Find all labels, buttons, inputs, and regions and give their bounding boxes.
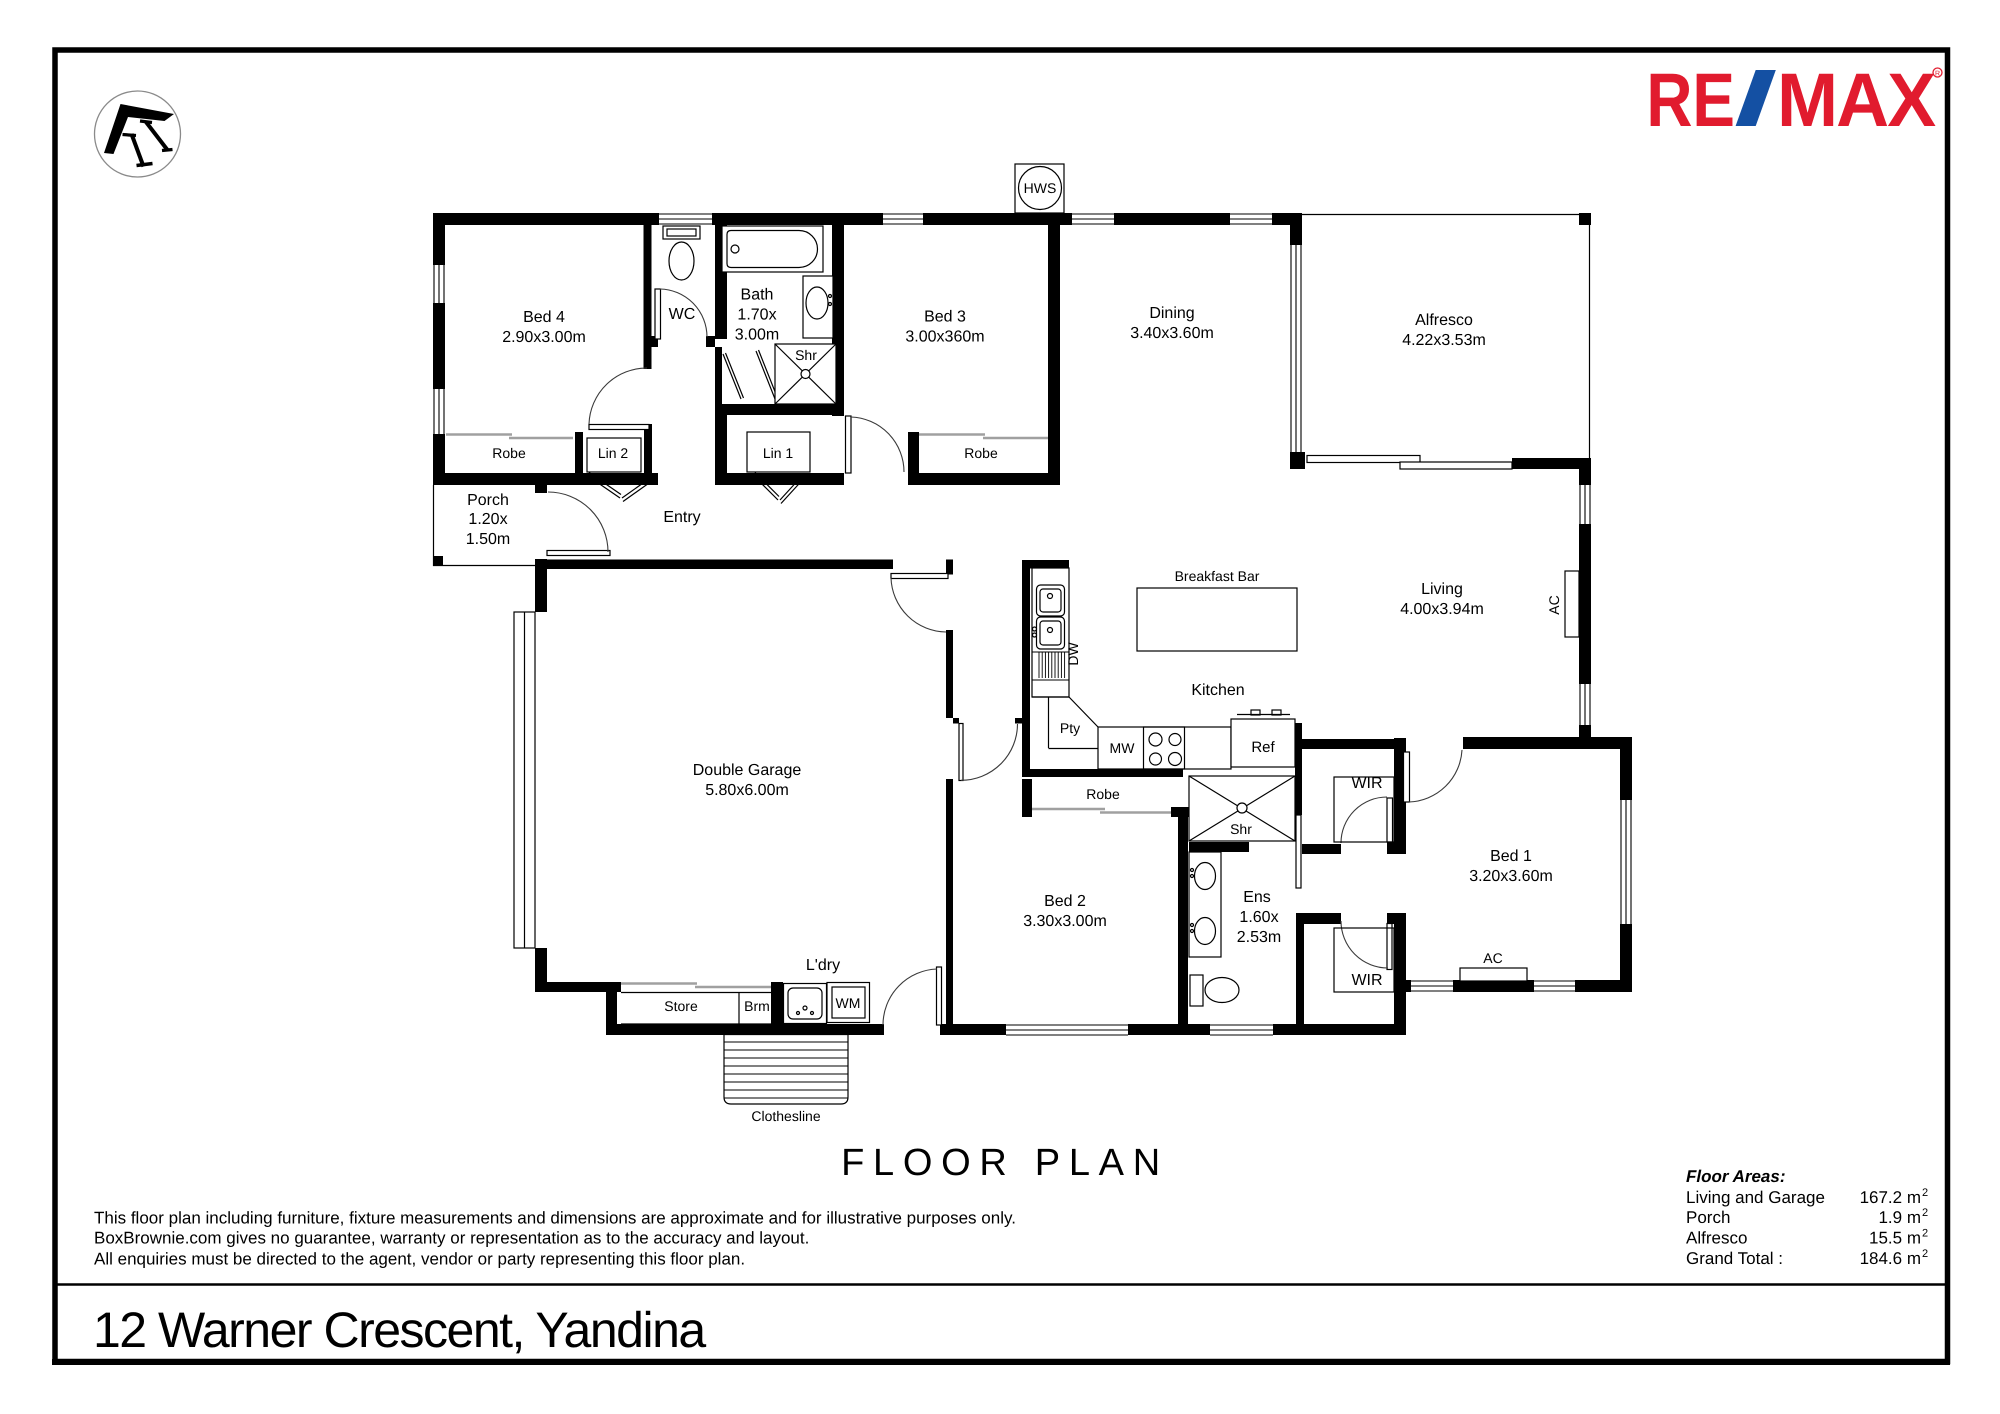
- svg-text:WIR: WIR: [1351, 972, 1382, 989]
- svg-text:Porch: Porch: [467, 492, 509, 509]
- svg-text:R: R: [1935, 71, 1940, 78]
- svg-text:Bed 3: Bed 3: [924, 309, 966, 326]
- svg-text:Robe: Robe: [492, 445, 526, 461]
- svg-text:Dining: Dining: [1149, 305, 1194, 322]
- svg-text:1.20x: 1.20x: [468, 511, 507, 528]
- svg-text:1.9 m: 1.9 m: [1878, 1208, 1921, 1227]
- svg-text:AC: AC: [1546, 595, 1562, 614]
- svg-text:AC: AC: [1483, 950, 1502, 966]
- svg-text:Shr: Shr: [795, 347, 817, 363]
- svg-text:Shr: Shr: [1230, 821, 1252, 837]
- svg-text:3.20x3.60m: 3.20x3.60m: [1469, 868, 1553, 885]
- svg-text:4.00x3.94m: 4.00x3.94m: [1400, 601, 1484, 618]
- svg-text:3.00m: 3.00m: [735, 327, 779, 344]
- svg-text:1.70x: 1.70x: [737, 307, 776, 324]
- svg-text:2: 2: [1922, 1207, 1928, 1219]
- svg-text:WM: WM: [836, 995, 861, 1011]
- svg-text:This floor plan including furn: This floor plan including furniture, fix…: [94, 1209, 1016, 1228]
- svg-text:15.5 m: 15.5 m: [1869, 1229, 1921, 1248]
- svg-text:Bath: Bath: [741, 287, 774, 304]
- svg-text:Breakfast Bar: Breakfast Bar: [1175, 568, 1260, 584]
- svg-text:Clothesline: Clothesline: [751, 1108, 820, 1124]
- svg-text:MAX: MAX: [1777, 58, 1936, 143]
- svg-text:Kitchen: Kitchen: [1191, 682, 1244, 699]
- svg-text:WC: WC: [669, 306, 696, 323]
- svg-text:Entry: Entry: [663, 509, 700, 526]
- svg-text:184.6 m: 184.6 m: [1860, 1249, 1921, 1268]
- svg-text:Brm: Brm: [744, 998, 770, 1014]
- svg-text:Lin 2: Lin 2: [598, 445, 629, 461]
- svg-text:Floor Areas:: Floor Areas:: [1686, 1167, 1786, 1186]
- svg-text:2: 2: [1922, 1187, 1928, 1199]
- svg-text:Ref: Ref: [1251, 739, 1275, 756]
- svg-text:4.22x3.53m: 4.22x3.53m: [1402, 332, 1486, 349]
- svg-text:2: 2: [1922, 1248, 1928, 1260]
- svg-text:167.2 m: 167.2 m: [1860, 1188, 1921, 1207]
- svg-text:5.80x6.00m: 5.80x6.00m: [705, 782, 789, 799]
- svg-text:2.53m: 2.53m: [1237, 929, 1281, 946]
- svg-text:All enquiries must be directed: All enquiries must be directed to the ag…: [94, 1249, 745, 1268]
- svg-text:BoxBrownie.com gives no guaran: BoxBrownie.com gives no guarantee, warra…: [94, 1229, 809, 1248]
- svg-text:2.90x3.00m: 2.90x3.00m: [502, 329, 586, 346]
- svg-text:Double Garage: Double Garage: [693, 762, 802, 779]
- svg-text:3.00x360m: 3.00x360m: [905, 329, 984, 346]
- svg-text:Bed 4: Bed 4: [523, 309, 565, 326]
- svg-text:Living: Living: [1421, 581, 1463, 598]
- svg-text:MW: MW: [1110, 740, 1136, 756]
- svg-text:Grand Total :: Grand Total :: [1686, 1249, 1783, 1268]
- svg-text:1.50m: 1.50m: [466, 531, 510, 548]
- svg-text:2: 2: [1922, 1228, 1928, 1240]
- svg-text:Porch: Porch: [1686, 1208, 1730, 1227]
- svg-text:3.40x3.60m: 3.40x3.60m: [1130, 325, 1214, 342]
- svg-text:Store: Store: [664, 998, 698, 1014]
- svg-text:Alfresco: Alfresco: [1415, 312, 1473, 329]
- svg-text:Robe: Robe: [964, 445, 998, 461]
- svg-text:Ens: Ens: [1243, 889, 1271, 906]
- svg-text:Alfresco: Alfresco: [1686, 1229, 1747, 1248]
- svg-text:DW: DW: [1065, 642, 1081, 666]
- svg-text:1.60x: 1.60x: [1239, 909, 1278, 926]
- svg-text:Bed 1: Bed 1: [1490, 848, 1532, 865]
- svg-text:WIR: WIR: [1351, 775, 1382, 792]
- svg-text:RE: RE: [1646, 58, 1735, 143]
- svg-text:12 Warner Crescent, Yandina: 12 Warner Crescent, Yandina: [93, 1302, 706, 1358]
- svg-text:Lin 1: Lin 1: [763, 445, 794, 461]
- svg-text:HWS: HWS: [1024, 180, 1057, 196]
- svg-text:Pty: Pty: [1060, 720, 1080, 736]
- svg-text:3.30x3.00m: 3.30x3.00m: [1023, 913, 1107, 930]
- svg-text:L'dry: L'dry: [806, 957, 840, 974]
- svg-text:Bed 2: Bed 2: [1044, 893, 1086, 910]
- svg-text:FLOOR PLAN: FLOOR PLAN: [841, 1142, 1169, 1184]
- svg-text:Robe: Robe: [1086, 786, 1120, 802]
- svg-text:Living and Garage: Living and Garage: [1686, 1188, 1825, 1207]
